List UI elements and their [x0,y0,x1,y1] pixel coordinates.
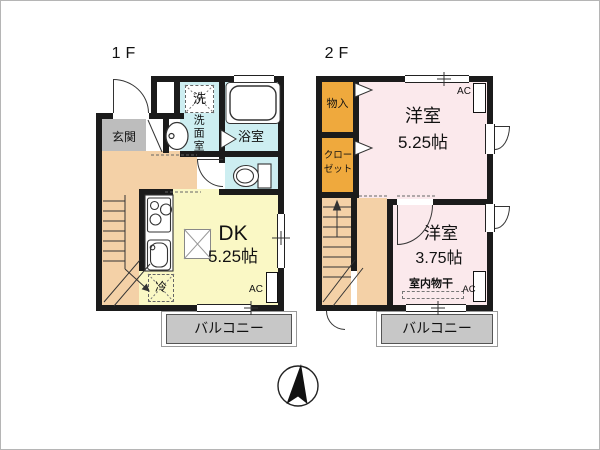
stairs-1f-treads [103,195,150,306]
label-room525: 洋室 [383,107,463,127]
label-bathroom: 浴室 [223,130,279,144]
label-ac-1f: AC [246,284,266,295]
label-balcony-1f: バルコニー [166,321,292,336]
stairs-2f-treads [323,201,363,306]
storage-door-triangle [355,83,372,97]
label-indoor-drying: 室内物干 [398,278,464,290]
floorplan-canvas: 1F 2F 玄関 洗 洗面室 浴室 DK 5.25帖 冷 AC バルコニー 物入… [0,0,600,450]
washbasin [166,123,188,150]
kitchen-counter [145,195,173,271]
label-ac-room525: AC [454,86,474,97]
label-room375-size: 3.75帖 [397,250,481,268]
bathtub [226,83,280,124]
label-storage: 物入 [321,98,354,110]
north-needle [287,364,308,404]
label-washer: 洗 [185,92,214,106]
label-washroom: 洗面室 [192,113,204,153]
label-closet-line1: クロー [320,151,356,161]
floor1-label: 1F [101,45,151,63]
toilet [234,164,272,188]
compass [278,364,318,406]
label-genkan: 玄関 [102,131,146,144]
label-dk-size: 5.25帖 [195,248,271,267]
entrance-step-line [148,120,162,152]
label-ac-room375: AC [459,285,479,295]
label-dk: DK [203,222,263,245]
label-closet-line2: ゼット [320,165,356,175]
threshold-dashes [151,155,435,196]
label-balcony-2f: バルコニー [381,321,493,336]
floor2-label: 2F [314,45,364,63]
glyph-layer [1,1,600,450]
label-room375: 洋室 [401,225,481,244]
label-room525-size: 5.25帖 [381,134,465,153]
closet-door-triangle [355,141,372,155]
label-fridge: 冷 [148,281,174,294]
stairs-up-arrow [334,201,341,210]
